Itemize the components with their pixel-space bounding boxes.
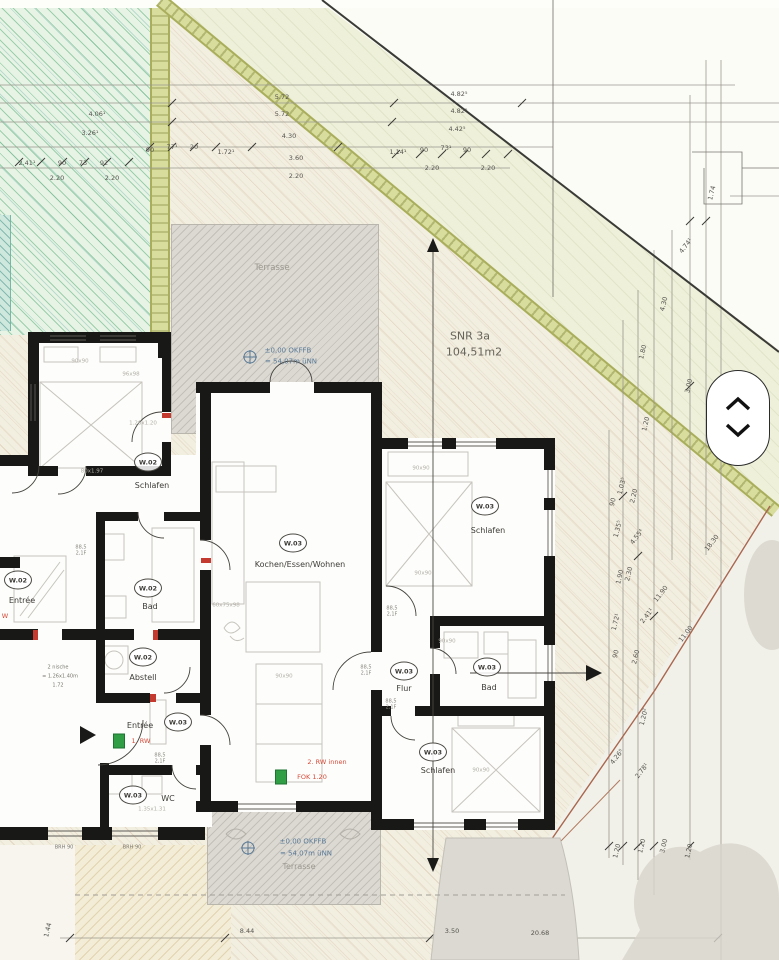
dim-label: 2.20: [425, 165, 439, 172]
room-badge: W.03: [119, 786, 147, 805]
dim-label: 73¹: [441, 145, 452, 152]
dim-label: 90: [58, 160, 66, 167]
dim-label: 3.26¹: [81, 130, 98, 137]
dim-label: 2.20: [105, 175, 119, 182]
room-name: Bad: [481, 684, 496, 692]
dim-label: 73: [79, 160, 87, 167]
dim-label: 2.20: [50, 175, 64, 182]
room-name: Schlafen: [421, 767, 455, 775]
furniture-label: 1.35x1.31: [138, 807, 166, 813]
dim-label: 90: [463, 147, 471, 154]
furniture-label: 96x98: [122, 372, 139, 378]
brh-label: BRH 90: [55, 846, 74, 851]
room-name: Bad: [142, 603, 157, 611]
dim-label: 90: [609, 497, 617, 507]
furniture-label: 90x90: [472, 768, 489, 774]
floor-plan-drawing: [0, 0, 779, 960]
dim-label: 90: [420, 147, 428, 154]
red-note-rw2: 2. RW innen: [307, 759, 346, 766]
scroll-down-button[interactable]: [724, 422, 752, 440]
dim-label: 4.06¹: [88, 111, 105, 118]
furniture-label: 90x90: [412, 466, 429, 472]
door-dim-label: 88,5 2,1F: [385, 699, 396, 711]
level-text-4: = 54,07m üNN: [280, 851, 332, 858]
room-name: Schlafen: [471, 527, 505, 535]
drain-marker-icon: [275, 770, 287, 785]
door-dim-label: 88,5 2,1F: [75, 545, 86, 557]
room-name: Entrée: [127, 722, 153, 730]
room-badge: W.03: [471, 497, 499, 516]
dim-label: 5.72: [275, 111, 289, 118]
dim-label: 4.30: [282, 133, 296, 140]
room-badge: W.02: [134, 453, 162, 472]
door-dim-label: 88,5 2,1F: [360, 665, 371, 677]
room-badge: W.03: [390, 662, 418, 681]
dim-label: 4.82⁵: [450, 108, 467, 115]
furniture-label: 1.26x1.20: [129, 421, 157, 427]
room-badge: W.03: [473, 658, 501, 677]
door-height: 2,1F: [361, 670, 372, 676]
dim-label: 20: [190, 144, 198, 151]
brh-label: BRH 90: [123, 846, 142, 851]
dim-label: 77¹: [167, 144, 178, 151]
red-note-rw1: 1. RW: [132, 738, 151, 745]
site-plan-viewer: Terrasse ±0,00 OKFFB = 54,07m üNN ±0,00 …: [0, 0, 779, 960]
terrace-bottom-label: Terrasse: [282, 863, 315, 871]
dim-label: 90: [612, 649, 620, 659]
chevron-up-icon: [724, 396, 752, 412]
dim-label: 20.68: [531, 930, 550, 937]
door-dim-label: 88,5 2,1F: [154, 753, 165, 765]
dim-label: 90: [146, 147, 154, 154]
dim-label: 3.50: [445, 928, 459, 935]
furniture-label: 90x90: [438, 639, 455, 645]
niche-note-2: = 1.26x1.40m: [42, 675, 78, 680]
room-name: Kochen/Essen/Wohnen: [255, 561, 345, 569]
scroll-widget[interactable]: [706, 370, 770, 466]
room-name: Abstell: [129, 674, 156, 682]
door-height: 2,1F: [387, 611, 398, 617]
drain-marker-icon: [113, 734, 125, 749]
dim-label: 8.44: [240, 928, 254, 935]
dim-label: 92: [100, 160, 108, 167]
furniture-label: 80x1.97: [81, 469, 104, 475]
red-note-w: W: [2, 613, 8, 620]
room-badge: W.03: [419, 743, 447, 762]
dim-label: 2.20: [481, 165, 495, 172]
scroll-up-button[interactable]: [724, 396, 752, 414]
room-badge: W.02: [4, 571, 32, 590]
room-name: Entrée: [9, 597, 35, 605]
dim-label: 5.72: [275, 94, 289, 101]
door-height: 2,1F: [76, 550, 87, 556]
level-text-2: = 54,07m üNN: [265, 359, 317, 366]
dim-label: 1.14¹: [389, 149, 406, 156]
room-badge: W.03: [164, 713, 192, 732]
furniture-label: 60x75x98: [212, 603, 240, 609]
room-name: WC: [161, 795, 175, 803]
niche-note-1: 2 nische: [48, 666, 69, 671]
furniture-label: 90x90: [414, 571, 431, 577]
dim-label: 4.42⁵: [448, 126, 465, 133]
level-text-1: ±0,00 OKFFB: [265, 348, 312, 355]
furniture-label: 90x90: [275, 674, 292, 680]
niche-note-3: 1.72: [52, 684, 63, 689]
parcel-area: 104,51m2: [446, 347, 502, 358]
room-name: Schlafen: [135, 482, 169, 490]
door-dim-label: 88,5 2,1F: [386, 606, 397, 618]
room-badge: W.02: [129, 648, 157, 667]
level-text-3: ±0,00 OKFFB: [280, 839, 327, 846]
red-note-fok: FOK 1.20: [297, 774, 327, 781]
dim-label: 3.60: [289, 155, 303, 162]
room-badge: W.03: [279, 534, 307, 553]
parcel-name: SNR 3a: [450, 331, 490, 342]
dim-label: 2.41¹: [18, 160, 35, 167]
dim-label: 2.20: [289, 173, 303, 180]
door-height: 2,1F: [386, 704, 397, 710]
room-badge: W.02: [134, 579, 162, 598]
chevron-down-icon: [724, 422, 752, 438]
vegetation-blobs: [622, 540, 779, 960]
room-name: Flur: [396, 685, 411, 693]
terrace-top-label: Terrasse: [254, 264, 289, 273]
door-height: 2,1F: [155, 758, 166, 764]
dim-label: 4.82⁵: [450, 91, 467, 98]
dim-label: 1.72¹: [217, 149, 234, 156]
furniture-label: 90x90: [71, 359, 88, 365]
